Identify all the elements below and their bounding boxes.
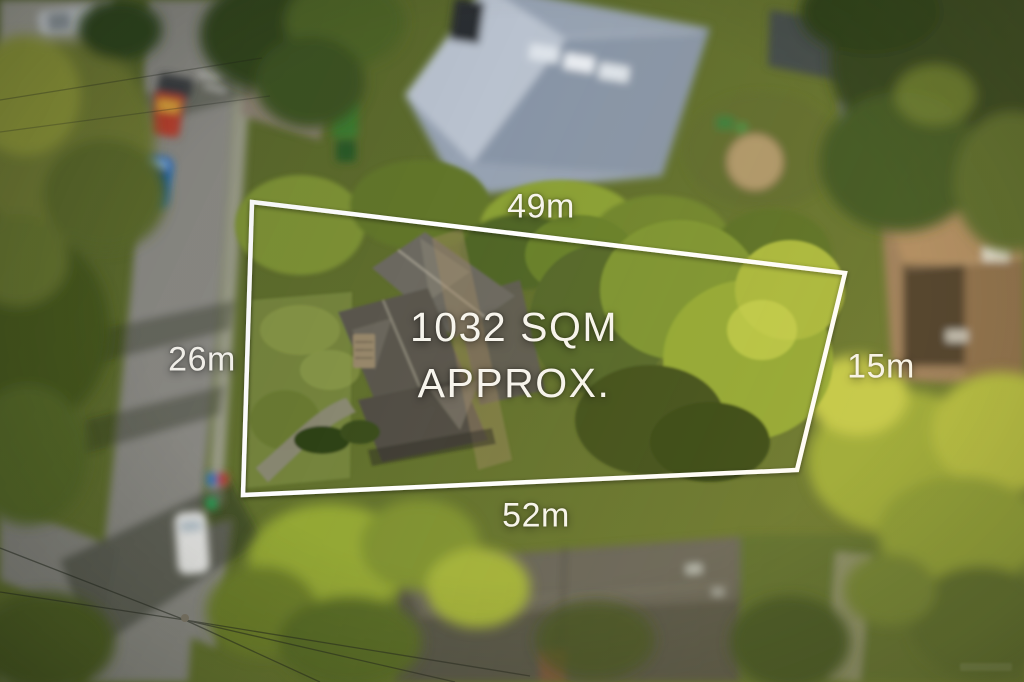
dimension-label-bottom: 52m — [502, 497, 570, 536]
area-label-line1: 1032 SQM — [410, 299, 618, 355]
area-label: 1032 SQM APPROX. — [410, 299, 618, 411]
dimension-label-left: 26m — [168, 341, 236, 380]
dimension-label-right: 15m — [847, 348, 915, 387]
dimension-label-top: 49m — [507, 188, 575, 227]
area-label-line2: APPROX. — [410, 355, 618, 411]
watermark — [960, 663, 1012, 671]
aerial-property-photo: 49m 26m 15m 52m 1032 SQM APPROX. — [0, 0, 1024, 682]
